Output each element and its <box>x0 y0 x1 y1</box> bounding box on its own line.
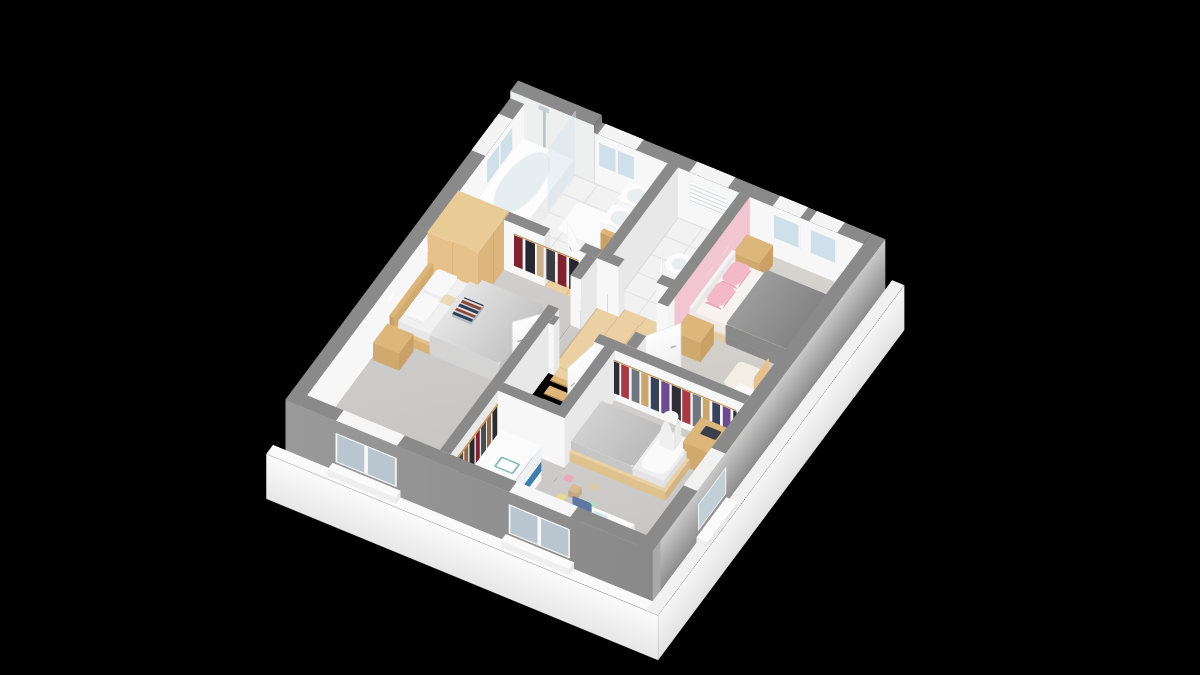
wall-wc-south-a-face-e <box>619 259 625 317</box>
wall-sw-face-e <box>653 541 661 602</box>
wall-bathroom-east-face-s <box>597 258 607 313</box>
shower-column <box>543 108 545 150</box>
canvas: { "scene": { "type": "3d-floor-plan-rend… <box>0 0 1200 675</box>
wall-wc-south-a-face-s <box>607 262 618 317</box>
wall-master-east-a-face-s <box>570 275 580 330</box>
wall-divider-stub-face-e <box>554 317 560 375</box>
